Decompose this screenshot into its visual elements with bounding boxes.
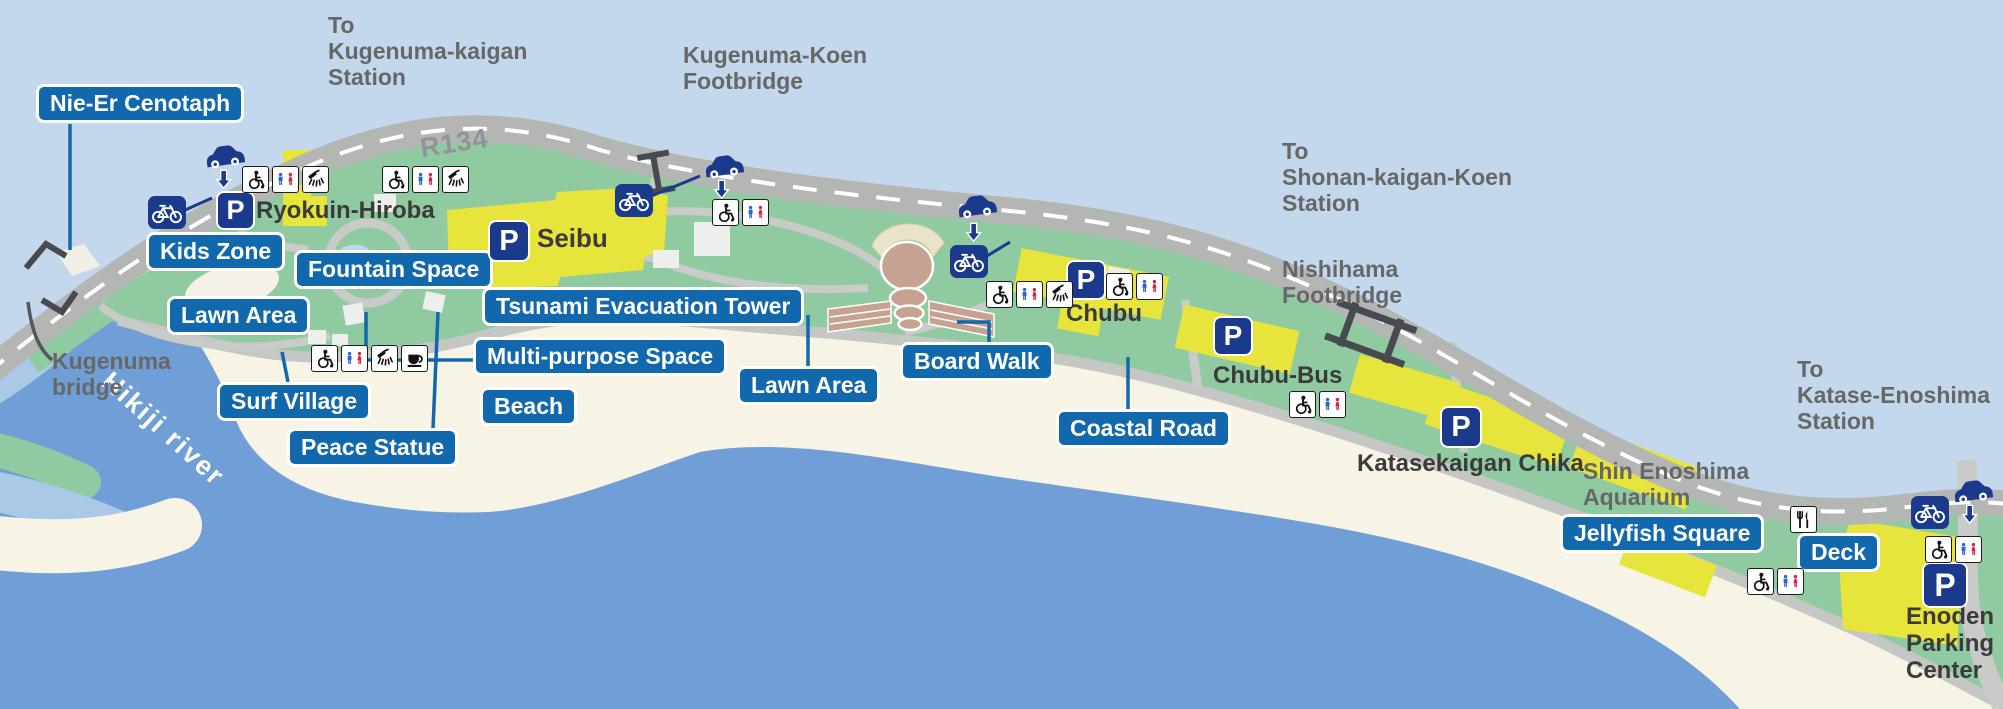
car-entrance-icon <box>955 191 997 219</box>
label-ryokuin-hiroba: Ryokuin-Hiroba <box>256 198 435 225</box>
label-surf-village: Surf Village <box>217 382 371 421</box>
facility-strip-restaurant <box>1790 506 1817 533</box>
entrance-arrow-icon <box>216 169 233 192</box>
parking-icon-katasekaigan-chika: P <box>1440 406 1482 448</box>
restroom-icon <box>742 199 769 226</box>
facility-strip-chubu-bus <box>1289 391 1346 418</box>
park-map: R134 Hikiji river To Kugenuma-kaigan Sta… <box>0 0 2003 709</box>
restroom-icon <box>1777 568 1804 595</box>
label-jellyfish-square: Jellyfish Square <box>1560 514 1764 553</box>
wheelchair-icon <box>712 199 739 226</box>
label-shin-enoshima-aquarium: Shin Enoshima Aquarium <box>1583 458 1749 510</box>
label-multi-purpose-space: Multi-purpose Space <box>473 337 727 376</box>
restroom-icon <box>412 166 439 193</box>
direction-kugenuma-koen-footbridge: Kugenuma-Koen Footbridge <box>683 42 867 94</box>
parking-icon-ryokuin: P <box>216 191 255 230</box>
label-enoden-parking-center: Enoden Parking Center <box>1906 604 1994 685</box>
restroom-icon <box>1016 281 1043 308</box>
label-nie-er-cenotaph: Nie-Er Cenotaph <box>36 84 244 123</box>
tsunami-tower-marker <box>342 302 365 325</box>
bicycle-icon <box>1911 496 1949 529</box>
label-kugenuma-bridge: Kugenuma bridge <box>52 348 171 400</box>
wheelchair-icon <box>1747 568 1774 595</box>
restroom-icon <box>1319 391 1346 418</box>
restroom-icon <box>341 345 368 372</box>
restroom-icon <box>1955 536 1982 563</box>
wheelchair-icon <box>1289 391 1316 418</box>
facility-strip-chubu-east <box>1106 273 1163 300</box>
label-kids-zone: Kids Zone <box>146 232 285 271</box>
direction-to-katase-enoshima-station: To Katase-Enoshima Station <box>1797 356 1990 435</box>
shower-icon <box>302 166 329 193</box>
direction-nishihama-footbridge: Nishihama Footbridge <box>1282 256 1402 308</box>
wheelchair-icon <box>382 166 409 193</box>
facility-strip-jellyfish <box>1747 568 1804 595</box>
label-board-walk: Board Walk <box>900 342 1054 381</box>
cafe-icon <box>401 345 428 372</box>
parking-icon-enoden: P <box>1922 562 1968 608</box>
shower-icon <box>442 166 469 193</box>
label-coastal-road: Coastal Road <box>1056 409 1231 448</box>
car-entrance-icon <box>1951 476 1993 504</box>
label-beach: Beach <box>480 387 577 426</box>
label-chubu: Chubu <box>1066 301 1142 328</box>
label-tsunami-evacuation-tower: Tsunami Evacuation Tower <box>482 287 804 326</box>
wheelchair-icon <box>311 345 338 372</box>
parking-icon-seibu: P <box>488 220 530 262</box>
direction-to-kugenuma-kaigan-station: To Kugenuma-kaigan Station <box>328 12 527 91</box>
entrance-arrow-icon <box>1962 504 1979 527</box>
bicycle-icon <box>148 196 186 229</box>
wheelchair-icon <box>242 166 269 193</box>
label-chubu-bus: Chubu-Bus <box>1213 363 1342 390</box>
restaurant-icon <box>1790 506 1817 533</box>
bicycle-icon <box>615 184 653 217</box>
facility-strip-chubu-west <box>986 281 1073 308</box>
facility-strip-ryokuin-west <box>242 166 329 193</box>
wheelchair-icon <box>986 281 1013 308</box>
label-deck: Deck <box>1797 533 1880 572</box>
label-lawn-area-center: Lawn Area <box>737 366 880 405</box>
wheelchair-icon <box>1106 273 1133 300</box>
facility-strip-enoden <box>1925 536 1982 563</box>
label-katasekaigan-chika: Katasekaigan Chika <box>1357 451 1584 478</box>
label-lawn-area-west: Lawn Area <box>167 296 310 335</box>
restroom-icon <box>1136 273 1163 300</box>
car-entrance-icon <box>203 141 245 169</box>
facility-strip-ryokuin-east <box>382 166 469 193</box>
bicycle-icon <box>950 245 988 278</box>
direction-to-shonan-kaigan-koen-station: To Shonan-kaigan-Koen Station <box>1282 138 1512 217</box>
label-fountain-space: Fountain Space <box>294 250 493 289</box>
parking-icon-chubu-bus: P <box>1213 316 1253 356</box>
facility-strip-surf-village <box>311 345 428 372</box>
car-entrance-icon <box>702 151 744 179</box>
shower-icon <box>1046 281 1073 308</box>
sand-spit <box>0 525 175 546</box>
label-peace-statue: Peace Statue <box>287 428 458 467</box>
facility-strip-footbridge <box>712 199 769 226</box>
wheelchair-icon <box>1925 536 1952 563</box>
label-seibu: Seibu <box>537 224 608 253</box>
restroom-icon <box>272 166 299 193</box>
shower-icon <box>371 345 398 372</box>
entrance-arrow-icon <box>966 222 983 245</box>
